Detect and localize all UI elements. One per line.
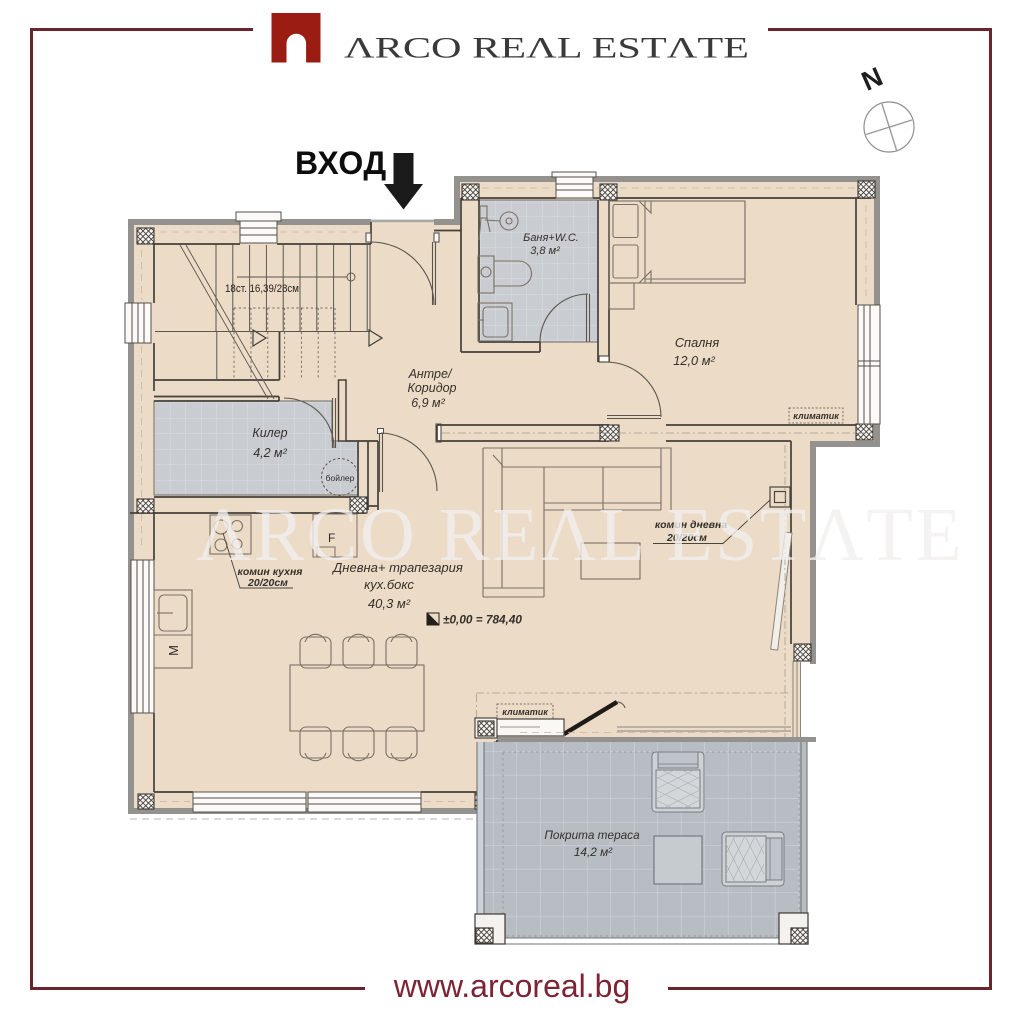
svg-text:бойлер: бойлер bbox=[326, 473, 355, 483]
svg-text:Спалня: Спалня bbox=[675, 335, 720, 350]
svg-text:климатик: климатик bbox=[502, 707, 548, 717]
svg-text:ΛRCO REΛL ESTΛTE: ΛRCO REΛL ESTΛTE bbox=[344, 32, 749, 65]
svg-text:ВХОД: ВХОД bbox=[295, 145, 387, 181]
svg-text:4,2 м²: 4,2 м² bbox=[253, 446, 287, 460]
svg-text:±0,00 = 784,40: ±0,00 = 784,40 bbox=[443, 613, 522, 627]
svg-text:6,9 м²: 6,9 м² bbox=[411, 396, 445, 410]
svg-text:Килер: Килер bbox=[252, 426, 287, 440]
svg-text:20/20см: 20/20см bbox=[247, 577, 288, 589]
svg-text:12,0 м²: 12,0 м² bbox=[673, 353, 715, 368]
svg-text:40,3 м²: 40,3 м² bbox=[368, 596, 411, 611]
svg-text:M: M bbox=[166, 645, 181, 656]
svg-text:18ст. 16,39/28см: 18ст. 16,39/28см bbox=[225, 283, 299, 295]
svg-text:3,8 м²: 3,8 м² bbox=[530, 245, 560, 257]
svg-text:Антре/: Антре/ bbox=[408, 367, 453, 381]
svg-text:Коридор: Коридор bbox=[407, 381, 456, 395]
svg-text:климатик: климатик bbox=[793, 411, 839, 421]
svg-text:Баня+W.C.: Баня+W.C. bbox=[523, 232, 579, 244]
svg-text:Покрита тераса: Покрита тераса bbox=[544, 828, 640, 842]
svg-text:14,2 м²: 14,2 м² bbox=[574, 845, 613, 859]
svg-text:кух.бокс: кух.бокс bbox=[364, 577, 414, 592]
svg-text:ΛRCO REΛL ESTΛTE: ΛRCO REΛL ESTΛTE bbox=[196, 493, 964, 577]
svg-text:www.arcoreal.bg: www.arcoreal.bg bbox=[393, 968, 631, 1004]
